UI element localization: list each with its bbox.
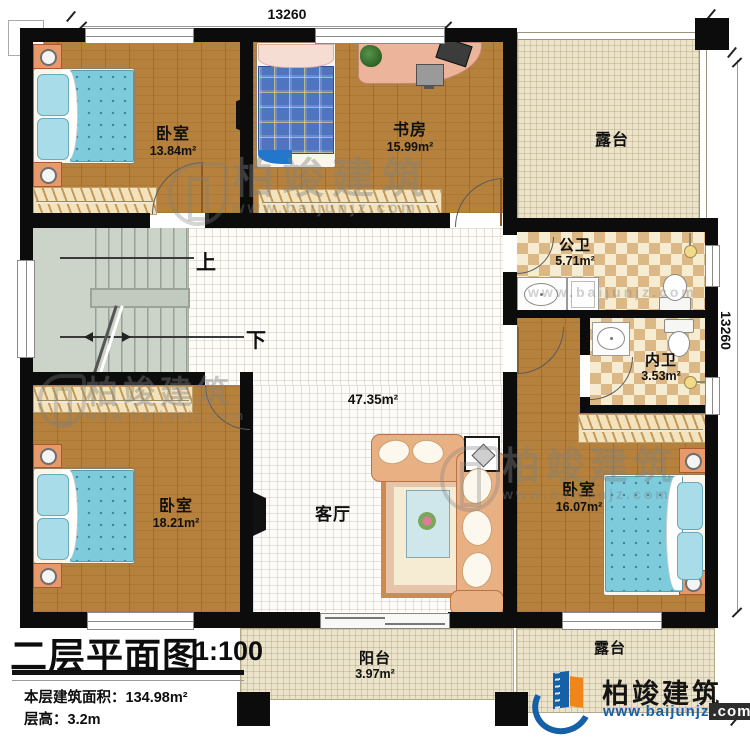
leader-tick bbox=[66, 11, 76, 22]
wall bbox=[517, 218, 705, 232]
wardrobe bbox=[33, 187, 157, 215]
wall bbox=[20, 354, 33, 628]
room-label-study: 书房 15.99m² bbox=[377, 122, 443, 155]
door-leaf bbox=[500, 178, 502, 226]
stair-arrow-right bbox=[122, 332, 131, 342]
nightstand-lamp bbox=[33, 44, 62, 69]
terrace-railing bbox=[517, 32, 705, 40]
room-label-bedroom-se: 卧室 16.07m² bbox=[543, 482, 615, 515]
window bbox=[705, 245, 720, 287]
floor-area-line: 本层建筑面积：134.98m² bbox=[24, 686, 188, 707]
stair-down-label: 下 bbox=[246, 324, 266, 353]
room-label-bedroom-sw: 卧室 18.21m² bbox=[143, 498, 209, 531]
stair-arrow-left bbox=[84, 332, 93, 342]
wall bbox=[503, 28, 517, 235]
bed-mattress bbox=[70, 470, 134, 562]
wall bbox=[33, 213, 150, 228]
nightstand-lamp bbox=[33, 563, 62, 588]
window bbox=[17, 260, 35, 358]
single-bed-pillow bbox=[258, 44, 334, 68]
nightstand-lamp bbox=[679, 448, 707, 473]
company-website: www.baijunjz.com bbox=[603, 703, 750, 720]
dimension-line-right bbox=[737, 60, 738, 612]
dimension-top: 13260 bbox=[242, 6, 332, 22]
living-room-floor-upper bbox=[188, 228, 503, 385]
shower-stall bbox=[567, 277, 599, 312]
column bbox=[237, 692, 270, 726]
pillow bbox=[37, 474, 69, 516]
stair-handrail bbox=[90, 288, 190, 308]
wall bbox=[20, 28, 33, 263]
wall bbox=[660, 612, 718, 628]
wall bbox=[503, 272, 517, 325]
wall-lamp-icon bbox=[684, 245, 697, 258]
pillow bbox=[37, 74, 69, 116]
wall bbox=[705, 413, 718, 612]
room-label-terrace-se: 露台 bbox=[580, 640, 640, 657]
room-label-bath-private: 内卫 3.53m² bbox=[628, 352, 694, 384]
wall bbox=[192, 28, 315, 42]
wall bbox=[33, 372, 205, 385]
title-rule-thin bbox=[12, 680, 244, 681]
window bbox=[562, 612, 662, 630]
wardrobe bbox=[258, 189, 442, 215]
side-table bbox=[464, 436, 500, 472]
wall bbox=[705, 218, 718, 245]
room-label-living: 客厅 bbox=[303, 505, 363, 525]
computer-monitor-icon bbox=[416, 64, 444, 86]
wardrobe bbox=[33, 386, 193, 413]
terrace-ne-floor bbox=[517, 38, 701, 220]
sliding-door bbox=[320, 613, 450, 629]
pillow bbox=[37, 518, 69, 560]
wall bbox=[192, 612, 320, 628]
monitor-stand bbox=[424, 85, 434, 89]
dimension-line-top bbox=[83, 26, 448, 27]
wall bbox=[240, 372, 253, 385]
floor-plan: 上 下 bbox=[0, 0, 750, 737]
sink-icon bbox=[597, 327, 625, 350]
company-logo-building-orange bbox=[570, 676, 583, 708]
single-bed-plaid-mattress bbox=[258, 66, 334, 154]
wall bbox=[580, 405, 705, 413]
plant-icon bbox=[360, 45, 382, 67]
plan-scale: 1:100 bbox=[194, 636, 263, 667]
room-label-terrace-ne: 露台 bbox=[580, 132, 644, 150]
table-flowers-icon bbox=[418, 512, 436, 530]
wall bbox=[240, 42, 253, 213]
room-label-balcony: 阳台 3.97m² bbox=[338, 650, 412, 682]
nightstand-lamp bbox=[33, 162, 62, 187]
door-leaf bbox=[201, 162, 203, 213]
dimension-right: 13260 bbox=[716, 295, 734, 365]
floor-height-line: 层高：3.2m bbox=[24, 708, 101, 729]
tv-icon bbox=[253, 492, 266, 536]
title-rule bbox=[12, 670, 244, 675]
wall bbox=[503, 372, 517, 613]
stair-direction-line-up bbox=[60, 257, 194, 259]
window bbox=[705, 377, 720, 415]
window bbox=[85, 28, 194, 44]
company-logo-building-blue bbox=[553, 671, 569, 709]
sink-icon bbox=[524, 283, 558, 306]
bed-mattress bbox=[70, 70, 134, 162]
wardrobe bbox=[578, 414, 707, 443]
window bbox=[315, 28, 445, 44]
nightstand-lamp bbox=[33, 444, 62, 468]
stair-up-label: 上 bbox=[196, 246, 216, 275]
column bbox=[695, 18, 729, 50]
wall bbox=[205, 213, 450, 228]
room-label-bedroom-nw: 卧室 13.84m² bbox=[140, 126, 206, 159]
door-leaf bbox=[517, 327, 519, 373]
pillow bbox=[677, 532, 703, 580]
column bbox=[495, 692, 528, 726]
room-label-bath-public: 公卫 5.71m² bbox=[543, 237, 607, 269]
wall bbox=[448, 612, 562, 628]
terrace-railing bbox=[699, 38, 707, 220]
pillow bbox=[677, 482, 703, 530]
wall bbox=[517, 310, 705, 318]
living-room-area-label: 47.35m² bbox=[335, 392, 411, 408]
wall bbox=[580, 318, 590, 355]
pillow bbox=[37, 118, 69, 160]
